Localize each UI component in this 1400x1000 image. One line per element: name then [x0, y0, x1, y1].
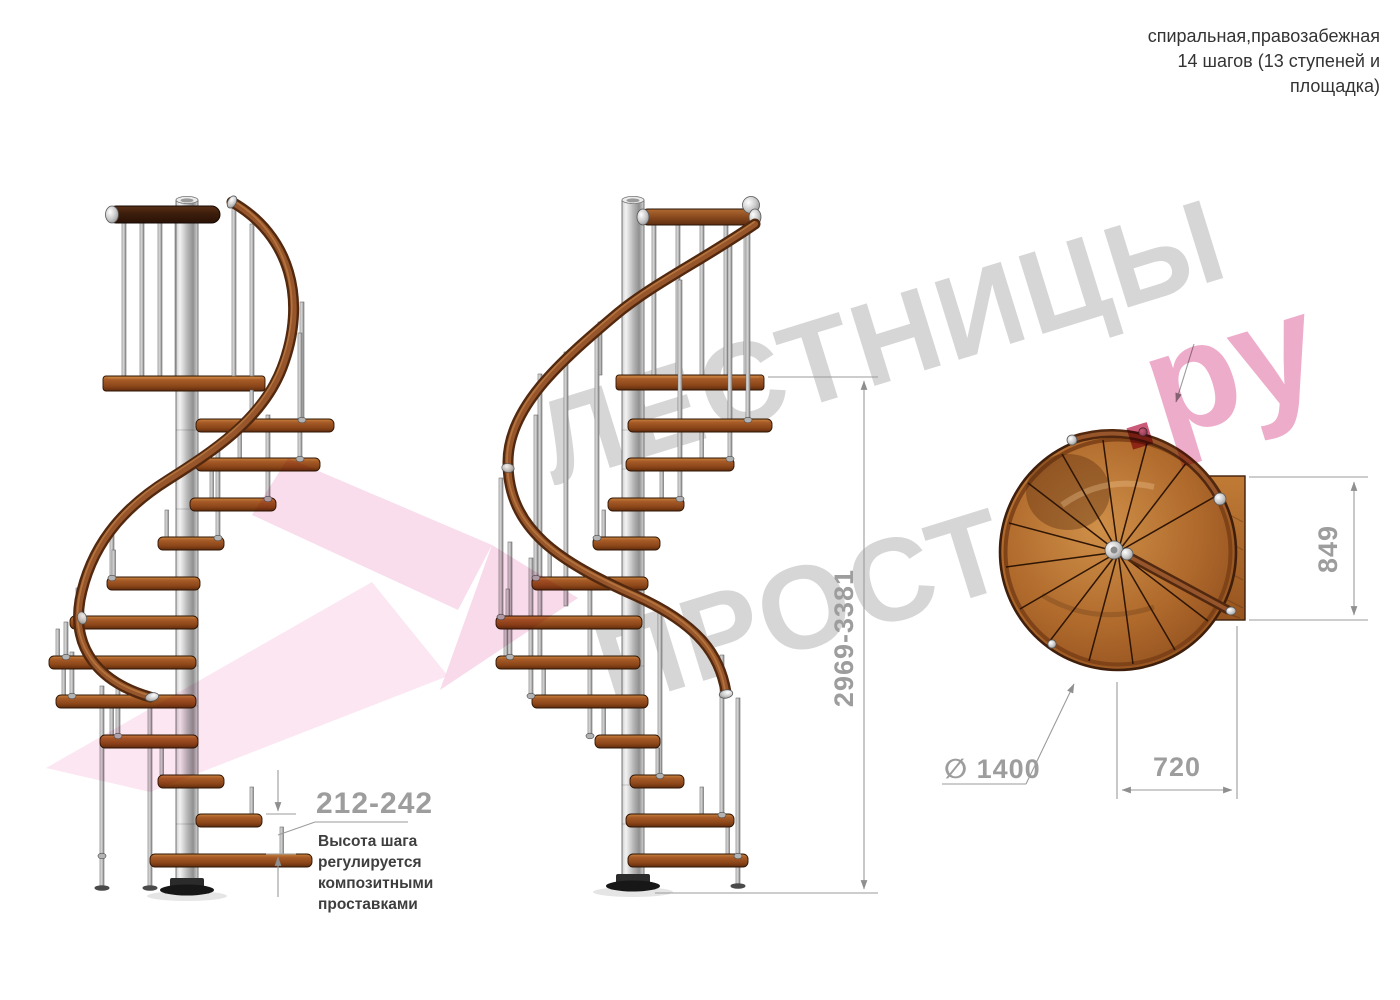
tread — [626, 814, 734, 827]
tread — [190, 498, 276, 511]
baluster-foot — [95, 885, 110, 891]
baluster — [250, 787, 254, 814]
balcony-rail — [108, 206, 220, 223]
tread — [196, 814, 262, 827]
baluster — [64, 622, 68, 656]
title-line-2: 14 шагов (13 ступеней и — [1148, 49, 1380, 74]
baluster — [506, 589, 510, 616]
step-height-note-line2: регулируется — [318, 854, 421, 871]
left-elevation-view — [49, 194, 334, 901]
step-height-note-line4: проставками — [318, 896, 418, 913]
dimension-landing-width: 849 — [1249, 477, 1368, 620]
baluster — [746, 233, 750, 419]
balcony-rail — [640, 209, 752, 225]
baluster — [110, 708, 114, 735]
baluster — [700, 787, 704, 814]
baluster — [652, 225, 656, 375]
baluster-foot — [731, 883, 746, 889]
tread — [593, 537, 660, 550]
rail-end-cap — [637, 209, 649, 225]
total-height-value: 2969-3381 — [829, 569, 859, 707]
baluster — [56, 629, 60, 656]
dimension-step-height: 212-242 Высота шага регулируется компози… — [266, 770, 433, 913]
rim-post — [1048, 640, 1056, 648]
tread — [595, 735, 660, 748]
tread — [196, 419, 334, 432]
baluster — [250, 224, 254, 376]
tread — [158, 775, 224, 788]
rail-end-cap — [1214, 493, 1226, 505]
tread — [532, 695, 648, 708]
baluster — [700, 225, 704, 375]
baluster-foot — [143, 885, 158, 891]
baluster — [210, 471, 214, 498]
tread — [150, 854, 312, 867]
landing-width-value: 849 — [1313, 525, 1343, 573]
baluster — [534, 415, 538, 577]
step-height-note-line3: композитными — [318, 875, 433, 892]
baluster — [726, 827, 730, 854]
landing-depth-value: 720 — [1153, 752, 1201, 782]
drawing-sheet: ЛЕСТНИЦЫ ПРОСТО — [0, 0, 1400, 1000]
staircase-drawing: 2969-3381 212-242 Высота шага регулирует… — [0, 0, 1400, 1000]
title-block: спиральная,правозабежная 14 шагов (13 ст… — [1148, 24, 1380, 99]
dimension-diameter: ∅ 1400 — [942, 684, 1074, 784]
baluster — [298, 333, 302, 458]
baluster — [165, 510, 169, 537]
baluster — [660, 471, 664, 498]
title-line-3: площадка) — [1148, 74, 1380, 99]
baluster — [564, 352, 568, 606]
rail-hub-ball — [1121, 548, 1133, 560]
tread — [496, 616, 642, 629]
baluster — [160, 748, 164, 775]
tread — [628, 854, 748, 867]
baluster — [140, 223, 144, 378]
column-base — [147, 878, 227, 901]
tread — [107, 577, 200, 590]
step-height-value: 212-242 — [316, 787, 433, 820]
rail-end-cap — [106, 206, 119, 223]
baluster — [62, 668, 66, 695]
baluster — [504, 629, 508, 656]
baluster — [158, 223, 162, 378]
baluster — [112, 550, 116, 577]
tread — [496, 656, 640, 669]
baluster — [122, 223, 126, 378]
baluster — [602, 510, 606, 537]
middle-elevation-view — [496, 196, 772, 897]
tread — [608, 498, 684, 511]
baluster — [602, 708, 606, 735]
baluster — [499, 478, 503, 616]
baluster — [232, 208, 236, 376]
baluster — [542, 668, 546, 695]
baluster — [656, 748, 660, 775]
tread — [70, 616, 198, 629]
plan-view — [1000, 428, 1245, 670]
tread — [56, 695, 196, 708]
tread — [626, 458, 734, 471]
rail-end-cap — [1067, 435, 1077, 445]
tread — [49, 656, 196, 669]
rail-end-cap — [1226, 607, 1236, 615]
baluster — [700, 432, 704, 458]
step-height-note-line1: Высота шага — [318, 833, 418, 850]
title-line-1: спиральная,правозабежная — [1148, 24, 1380, 49]
baluster — [595, 334, 599, 537]
diameter-value: ∅ 1400 — [944, 754, 1041, 784]
baluster — [280, 827, 284, 854]
